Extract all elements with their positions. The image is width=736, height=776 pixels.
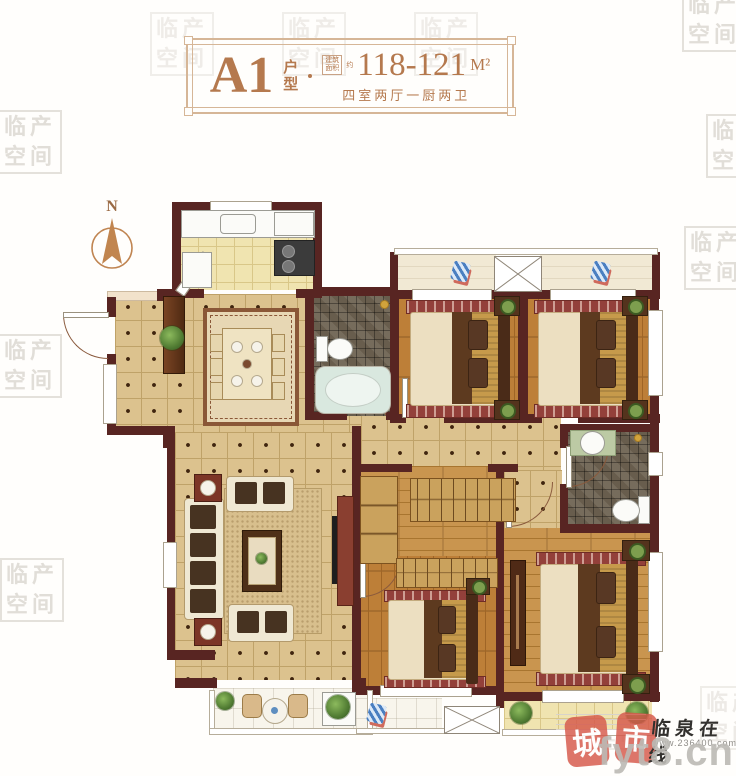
balcony-plant [216, 692, 234, 710]
wall [167, 650, 215, 660]
bed-pillow [596, 320, 616, 350]
nightstand-plant [628, 403, 644, 419]
nightstand [622, 400, 648, 420]
bed-headboard [626, 306, 638, 410]
sofa-cushion [190, 505, 216, 529]
site-watermark: fyt8.cn [598, 730, 734, 775]
nightstand-plant [500, 299, 516, 315]
area-approx: 约 [346, 60, 353, 70]
dining-chair [272, 334, 285, 352]
kitchen-stove [274, 240, 315, 276]
stove-burner [282, 245, 295, 258]
nightstand [622, 540, 650, 561]
area-value: 118-121 [357, 49, 466, 82]
toilet-bowl [327, 338, 353, 360]
watermark-seal: 临产空间 [0, 334, 62, 398]
floor-plan-page: 临产空间 临产空间 临产空间 临产空间 临产空间 临产空间 临产空间 临产空间 … [0, 0, 736, 776]
balcony-rail [394, 248, 658, 255]
dining-chair [210, 334, 223, 352]
separator-dot [308, 74, 312, 78]
duct-shaft [444, 706, 500, 734]
area-block: 建筑 面积 约 118-121 M² 四室两厅一厨两卫 [322, 49, 490, 104]
frame-notch [507, 107, 516, 116]
north-compass: N [84, 198, 140, 270]
duct-x-icon [495, 257, 541, 291]
place-setting [251, 341, 263, 353]
watermark-seal: 临产空间 [684, 226, 736, 290]
place-setting [231, 341, 243, 353]
sofa-cushion [190, 589, 216, 613]
area-unit: M² [470, 55, 490, 75]
plan-type-label: 户 型 [283, 59, 298, 94]
plan-type-char: 户 [283, 59, 298, 76]
plan-type-char: 型 [283, 76, 298, 93]
wall [167, 584, 175, 658]
bedroom1-window [648, 310, 663, 396]
balcony-sliding-door [215, 685, 355, 688]
nightstand [622, 674, 650, 694]
closet-dresser [360, 476, 398, 564]
bed-pillow [596, 626, 616, 658]
compass-icon [84, 216, 140, 272]
sofa-loveseat-top [226, 476, 294, 512]
nightstand [494, 296, 520, 316]
wall [390, 252, 398, 292]
nightstand [494, 400, 520, 420]
balcony-chair [288, 694, 308, 718]
nightstand-plant [628, 299, 644, 315]
bedroom3-door-leaf [360, 558, 366, 598]
wall [305, 289, 314, 420]
sofa-cushion [190, 561, 216, 585]
bed-headboard [466, 594, 478, 684]
balcony-chair [242, 694, 262, 718]
wall [650, 532, 659, 554]
area-label-line: 面积 [325, 65, 339, 73]
wall [386, 412, 399, 420]
master-dresser [510, 560, 526, 666]
dining-chair [272, 358, 285, 376]
wall [175, 678, 217, 688]
plan-title-inner-frame: A1 户 型 建筑 面积 约 118-121 M² 四室两厅一厨两卫 [192, 44, 508, 108]
side-table [194, 618, 222, 646]
wall [356, 464, 412, 472]
sofa-main [184, 498, 224, 620]
wall [560, 524, 656, 533]
stove-burner [282, 260, 295, 273]
coffee-table [242, 530, 282, 592]
side-table-plate [200, 624, 216, 640]
kitchen-sink [220, 214, 256, 234]
wall [167, 440, 175, 544]
dining-chair [210, 382, 223, 400]
bath2-fixture [634, 434, 642, 442]
bed-headboard [626, 558, 638, 678]
side-table [194, 474, 222, 502]
sofa-cushion [235, 482, 257, 504]
entrance-door-arc [63, 314, 108, 359]
bed-pillow [596, 358, 616, 388]
kitchen-sliding-door [204, 291, 298, 294]
bathtub [315, 366, 391, 414]
kitchen-fridge [182, 252, 212, 288]
dining-chair [272, 382, 285, 400]
balcony-top-left-floor [396, 254, 496, 292]
frame-notch [184, 107, 193, 116]
balcony-planter-plant [326, 695, 350, 719]
foyer-plant [160, 326, 184, 350]
bed-pillow [438, 644, 456, 672]
centerpiece [242, 359, 252, 369]
balcony-table-cup [271, 707, 278, 714]
bed-pillow [468, 320, 488, 350]
wall [313, 287, 398, 296]
coffee-table-flowers [256, 553, 267, 564]
wall [107, 426, 171, 435]
side-table-plate [200, 480, 216, 496]
nightstand-plant [629, 677, 646, 694]
duct-shaft [494, 256, 542, 292]
toilet-bowl [612, 499, 640, 522]
sofa-cushion [190, 533, 216, 557]
wall [652, 252, 660, 292]
nightstand [466, 578, 490, 595]
bed-headboard [498, 306, 510, 410]
bed-pillow [438, 606, 456, 634]
bath2-basin [580, 431, 605, 455]
foyer-window [103, 364, 117, 424]
plan-code: A1 [210, 50, 274, 102]
bed-pillow [468, 358, 488, 388]
watermark-seal: 临产空间 [0, 110, 62, 174]
balcony-rail [356, 728, 446, 734]
master-balcony-plant [510, 702, 532, 724]
bathtub-basin [325, 373, 381, 407]
frame-notch [507, 36, 516, 45]
master-window [648, 552, 663, 652]
bed-pillow [596, 572, 616, 604]
entrance-door-leaf [63, 312, 109, 318]
kitchen-cabinet [274, 212, 314, 236]
dining-chair [210, 358, 223, 376]
watermark-seal: 临产空间 [706, 114, 736, 178]
living-window [163, 542, 177, 588]
tv-cabinet [337, 496, 354, 606]
bath2-window [648, 452, 663, 476]
sofa-loveseat-bottom [228, 604, 294, 642]
wall [500, 692, 544, 701]
place-setting [251, 375, 263, 387]
shower-fixture [380, 300, 389, 309]
nightstand-plant [472, 580, 487, 595]
sofa-cushion [263, 482, 285, 504]
tv-screen [332, 516, 337, 584]
watermark-seal: 临产空间 [682, 0, 736, 52]
rooms-summary: 四室两厅一厨两卫 [342, 85, 470, 104]
nightstand-plant [629, 543, 646, 560]
walkin-closet-wardrobe [410, 478, 516, 522]
wall [390, 290, 399, 420]
balcony-rail [209, 728, 373, 735]
dresser-handle [516, 575, 519, 649]
duct-x-icon [445, 707, 499, 733]
dining-table [222, 328, 272, 400]
wall [650, 290, 659, 312]
sofa-cushion [237, 611, 259, 633]
balcony-table [262, 698, 288, 724]
north-label: N [84, 198, 140, 216]
area-label: 建筑 面积 [322, 55, 342, 76]
area-label-line: 建筑 [325, 57, 339, 65]
watermark-seal: 临产空间 [0, 558, 64, 622]
plan-title-box: A1 户 型 建筑 面积 约 118-121 M² 四室两厅一厨两卫 [186, 38, 514, 114]
nightstand [622, 296, 648, 316]
nightstand-plant [500, 403, 516, 419]
master-balcony-door [542, 690, 624, 703]
sofa-cushion [265, 611, 287, 633]
place-setting [231, 375, 243, 387]
